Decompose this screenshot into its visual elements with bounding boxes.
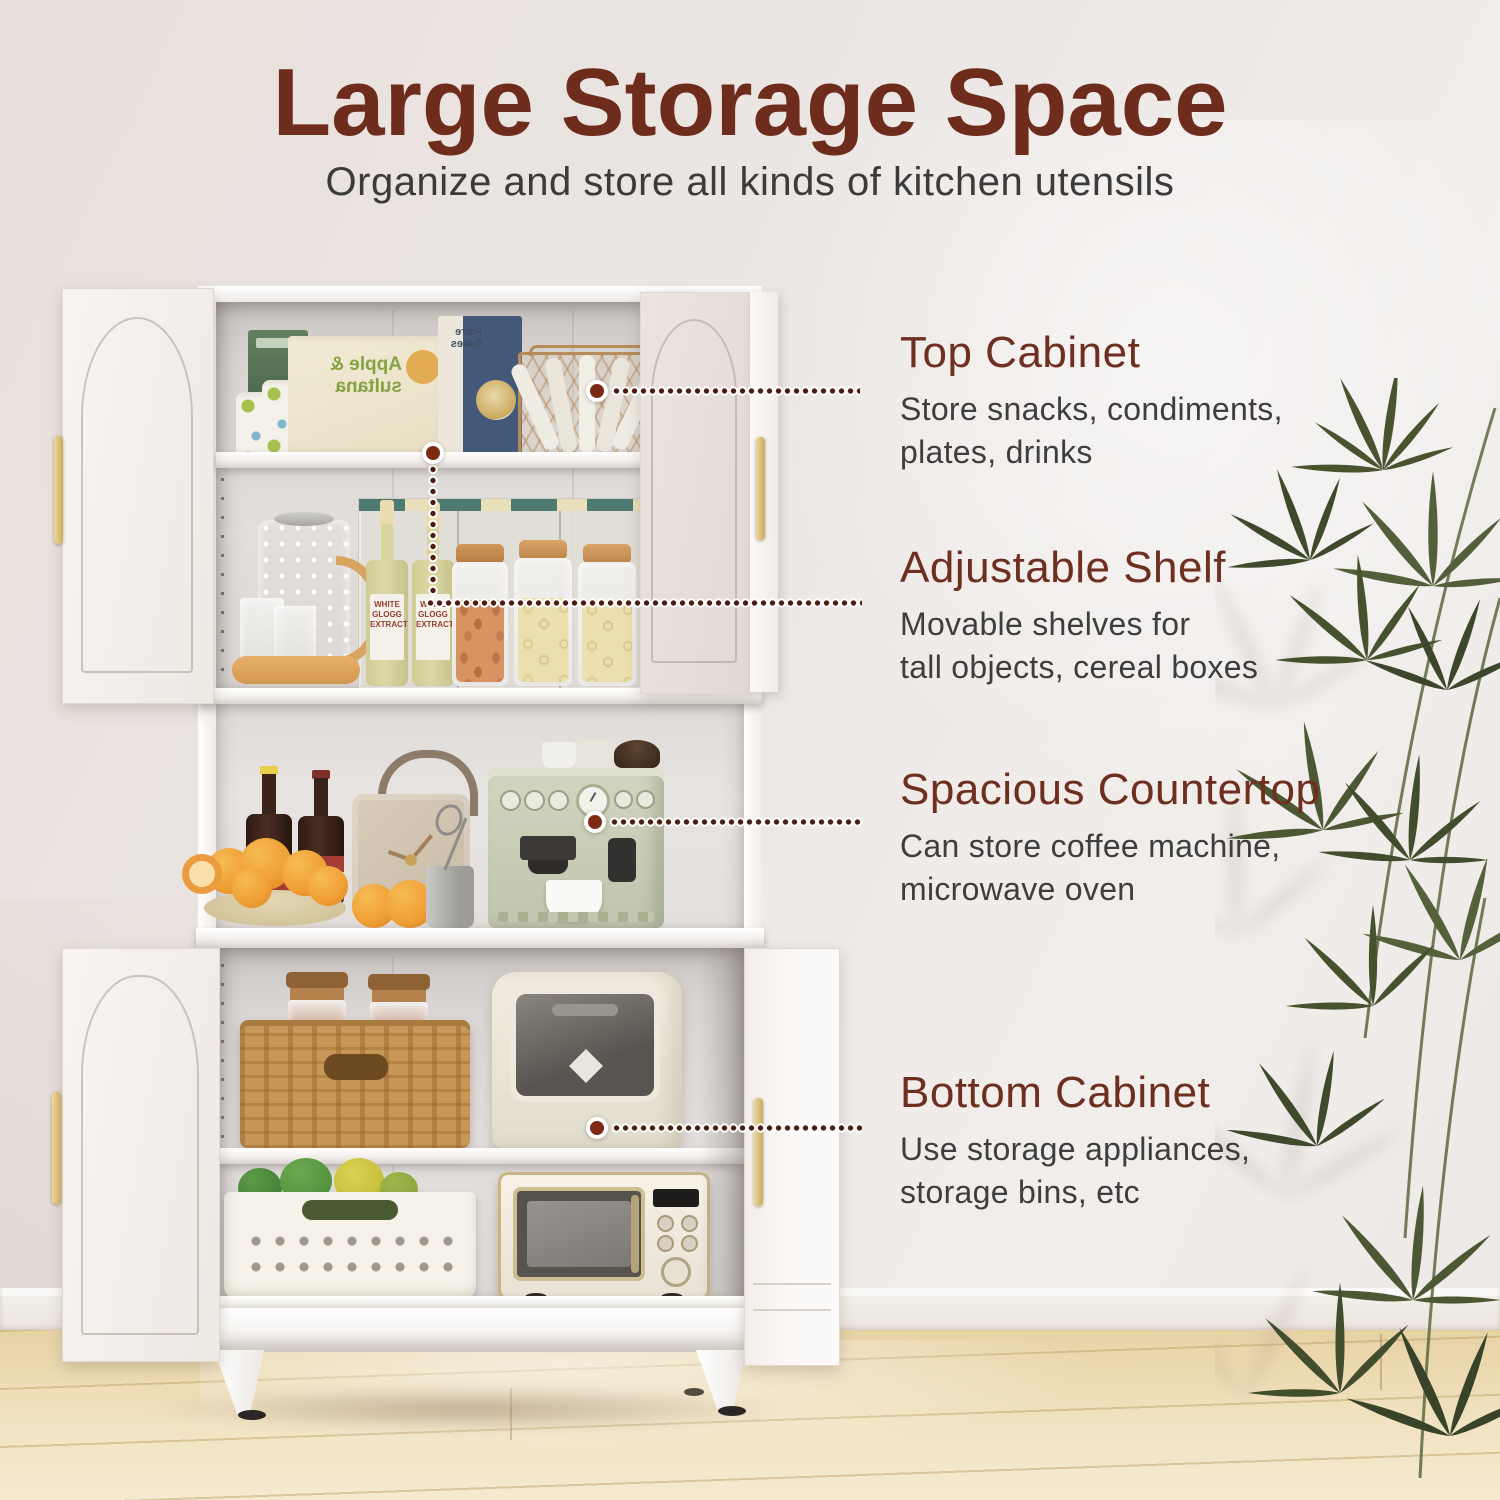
wire-basket <box>518 352 658 462</box>
cabinet-door-bottom-left <box>62 948 220 1362</box>
callout-connector-adjustable-shelf-vertical <box>426 464 440 598</box>
jar-wood-lid <box>368 974 430 990</box>
jar-lid <box>519 540 567 560</box>
door-arch-panel <box>81 317 193 673</box>
microwave-button <box>657 1235 674 1252</box>
pasta-jar <box>514 540 572 686</box>
microwave-window <box>513 1187 645 1281</box>
callout-top-cabinet: Top Cabinet Store snacks, condiments, pl… <box>900 328 1460 474</box>
nut-jar <box>452 544 508 686</box>
callout-connector-bottom-cabinet <box>612 1121 862 1135</box>
microwave-door-handle <box>631 1195 639 1273</box>
callout-connector-countertop <box>610 815 862 829</box>
microwave-screen <box>527 1201 631 1267</box>
coffee-machine <box>488 738 664 928</box>
callout-line: microwave oven <box>900 868 1460 911</box>
callout-line: Use storage appliances, <box>900 1128 1460 1171</box>
jar-wood-band <box>290 988 344 1000</box>
cabinet-door-top-left <box>62 288 214 704</box>
countertop <box>196 928 764 948</box>
cabinet-door-top-right <box>640 292 754 694</box>
microwave-knob <box>661 1257 691 1287</box>
jar-wood-lid <box>286 972 348 988</box>
wood-tray <box>232 656 360 684</box>
door-handle-gold <box>52 1092 61 1204</box>
cereal-box-fibre-label: Fibre flakes <box>442 326 482 350</box>
basket-handle-hole <box>324 1054 388 1080</box>
extract-bottle: WHITE GLOGG EXTRACT <box>366 500 408 686</box>
page-title: Large Storage Space <box>0 48 1500 158</box>
door-groove <box>753 1309 831 1311</box>
jar-pasta-fill <box>582 600 632 682</box>
wicker-basket <box>240 1020 470 1148</box>
callout-anchor-dot <box>422 442 444 464</box>
product-infographic: Large Storage Space Organize and store a… <box>0 0 1500 1500</box>
leg-foot <box>718 1406 746 1416</box>
callout-line: Movable shelves for <box>900 603 1460 646</box>
plate <box>579 355 595 453</box>
vegetable-basket <box>224 1192 476 1300</box>
orange <box>308 866 348 906</box>
cereal-box-dot <box>406 350 440 384</box>
callout-bottom-cabinet: Bottom Cabinet Use storage appliances, s… <box>900 1068 1460 1214</box>
callout-connector-adjustable-shelf <box>426 596 862 610</box>
orange-slice <box>182 854 222 894</box>
callout-connector-top-cabinet <box>612 384 860 398</box>
door-handle-gold <box>756 437 765 540</box>
machine-button <box>500 790 521 811</box>
callout-anchor-dot <box>584 811 606 833</box>
callout-line: Can store coffee machine, <box>900 825 1460 868</box>
callout-title: Spacious Countertop <box>900 765 1460 815</box>
coffee-cup-top <box>542 742 576 768</box>
jar-pasta-fill <box>518 598 568 682</box>
coffee-machine-body <box>488 768 664 928</box>
callout-title: Bottom Cabinet <box>900 1068 1460 1118</box>
shelf-pin-holes <box>221 478 224 674</box>
dispenser-handle <box>552 1004 618 1016</box>
callout-line: tall objects, cereal boxes <box>900 646 1460 689</box>
door-arch-panel <box>651 319 737 663</box>
microwave-button <box>681 1215 698 1232</box>
cereal-box: Apple & sultana <box>288 336 452 456</box>
bottle-body: WHITE GLOGG EXTRACT <box>366 560 408 686</box>
basket-handle-slot <box>302 1200 398 1220</box>
rear-leg-foot <box>684 1388 704 1396</box>
leaf-wall-shadows <box>1215 572 1407 1402</box>
callout-anchor-dot <box>586 1117 608 1139</box>
drip-tray <box>498 912 654 922</box>
microwave <box>498 1172 710 1300</box>
callout-line: Store snacks, condiments, <box>900 388 1460 431</box>
base-apron <box>210 1308 750 1352</box>
callout-title: Adjustable Shelf <box>900 543 1460 593</box>
machine-button <box>614 790 633 809</box>
microwave-button <box>681 1235 698 1252</box>
cereal-box-fibre: Fibre flakes <box>438 316 522 456</box>
callout-line: plates, drinks <box>900 431 1460 474</box>
door-groove <box>753 1283 831 1285</box>
page-subtitle: Organize and store all kinds of kitchen … <box>0 160 1500 205</box>
pitcher-lid <box>274 512 334 526</box>
callout-spacious-countertop: Spacious Countertop Can store coffee mac… <box>900 765 1460 911</box>
orange <box>232 868 272 908</box>
rice-paper <box>569 1049 603 1083</box>
door-arch-panel <box>81 975 199 1335</box>
cereal-box-label: Apple & sultana <box>302 354 402 398</box>
portafilter <box>528 860 568 874</box>
callout-title: Top Cabinet <box>900 328 1460 378</box>
callout-line: storage bins, etc <box>900 1171 1460 1214</box>
pasta-jar <box>578 544 636 686</box>
leg-foot <box>238 1410 266 1420</box>
machine-button <box>636 790 655 809</box>
door-handle-gold <box>754 1098 763 1206</box>
machine-button <box>548 790 569 811</box>
jar-wood-band <box>372 990 426 1002</box>
callout-adjustable-shelf: Adjustable Shelf Movable shelves for tal… <box>900 543 1460 689</box>
basket-perforations <box>244 1228 456 1286</box>
microwave-display <box>653 1189 699 1207</box>
dispenser-window <box>510 988 660 1102</box>
clock-center <box>405 854 417 866</box>
basket-wire-handle <box>529 345 653 356</box>
gauge-needle <box>590 792 597 802</box>
group-head <box>520 836 576 860</box>
shelf-pin-holes <box>221 964 224 1144</box>
microwave-button <box>657 1215 674 1232</box>
coffee-cup-top <box>576 740 616 768</box>
jar-lid <box>456 544 504 564</box>
steam-wand <box>608 838 636 882</box>
jar-lid <box>583 544 631 564</box>
milk-pitcher <box>426 866 474 928</box>
machine-button <box>524 790 545 811</box>
bean-hopper <box>614 740 660 768</box>
callout-anchor-dot <box>586 380 608 402</box>
cereal-bowl-picture <box>476 380 516 420</box>
door-handle-gold <box>54 436 63 544</box>
jar-almond-fill <box>456 600 504 682</box>
bottle-label: WHITE GLOGG EXTRACT <box>370 594 404 660</box>
